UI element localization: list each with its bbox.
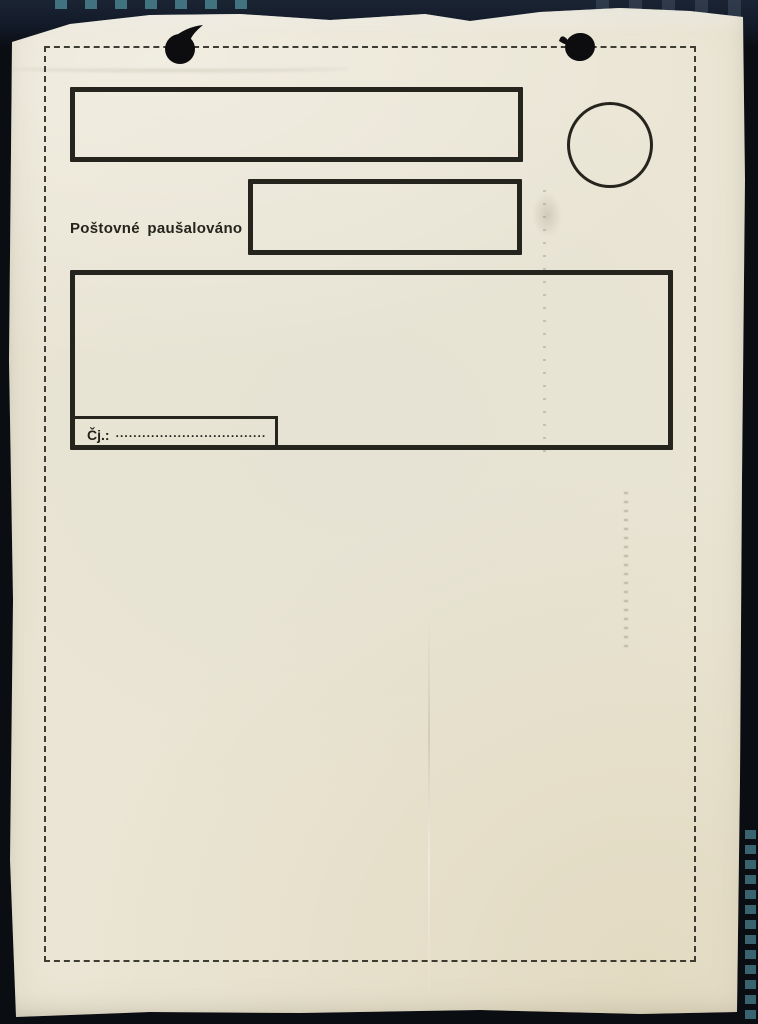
ink-smudge bbox=[532, 192, 562, 238]
address-box: Čj.: ...................................… bbox=[70, 270, 673, 450]
paper-vertical-crease bbox=[428, 620, 430, 1010]
bleed-through-specks bbox=[543, 190, 546, 460]
reference-dotted-line: ........................................ bbox=[116, 426, 266, 440]
form-page: Poštovné paušalováno Čj.: ..............… bbox=[0, 0, 758, 1024]
punch-hole-icon bbox=[557, 25, 601, 69]
header-box bbox=[70, 87, 523, 162]
scanned-document: Poštovné paušalováno Čj.: ..............… bbox=[0, 0, 758, 1024]
reference-label: Čj.: bbox=[87, 427, 110, 443]
postmark-circle-icon bbox=[567, 102, 653, 188]
postage-paid-label: Poštovné paušalováno bbox=[70, 220, 242, 237]
bleed-through-column bbox=[624, 492, 628, 650]
reference-number-box: Čj.: ...................................… bbox=[70, 416, 278, 450]
film-edge-marks-top-icon bbox=[55, 0, 255, 9]
film-sprocket-strip-icon bbox=[745, 830, 756, 1024]
middle-box bbox=[248, 179, 522, 255]
punch-hole-icon bbox=[160, 22, 208, 70]
